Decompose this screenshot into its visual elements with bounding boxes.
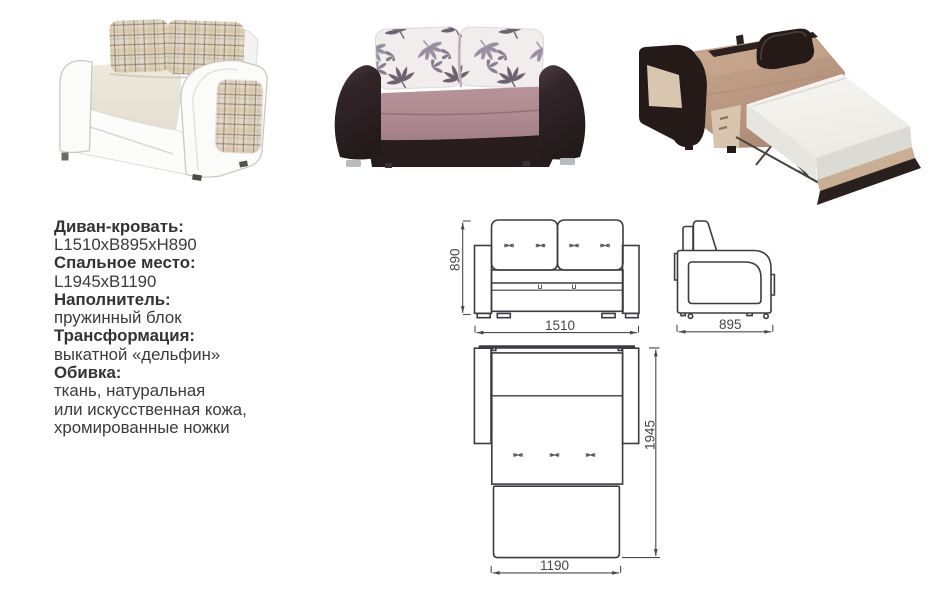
svg-text:1510: 1510 <box>545 318 575 333</box>
svg-text:890: 890 <box>448 248 463 271</box>
svg-text:1190: 1190 <box>540 558 569 573</box>
svg-text:895: 895 <box>719 317 742 332</box>
svg-text:1945: 1945 <box>643 420 658 450</box>
